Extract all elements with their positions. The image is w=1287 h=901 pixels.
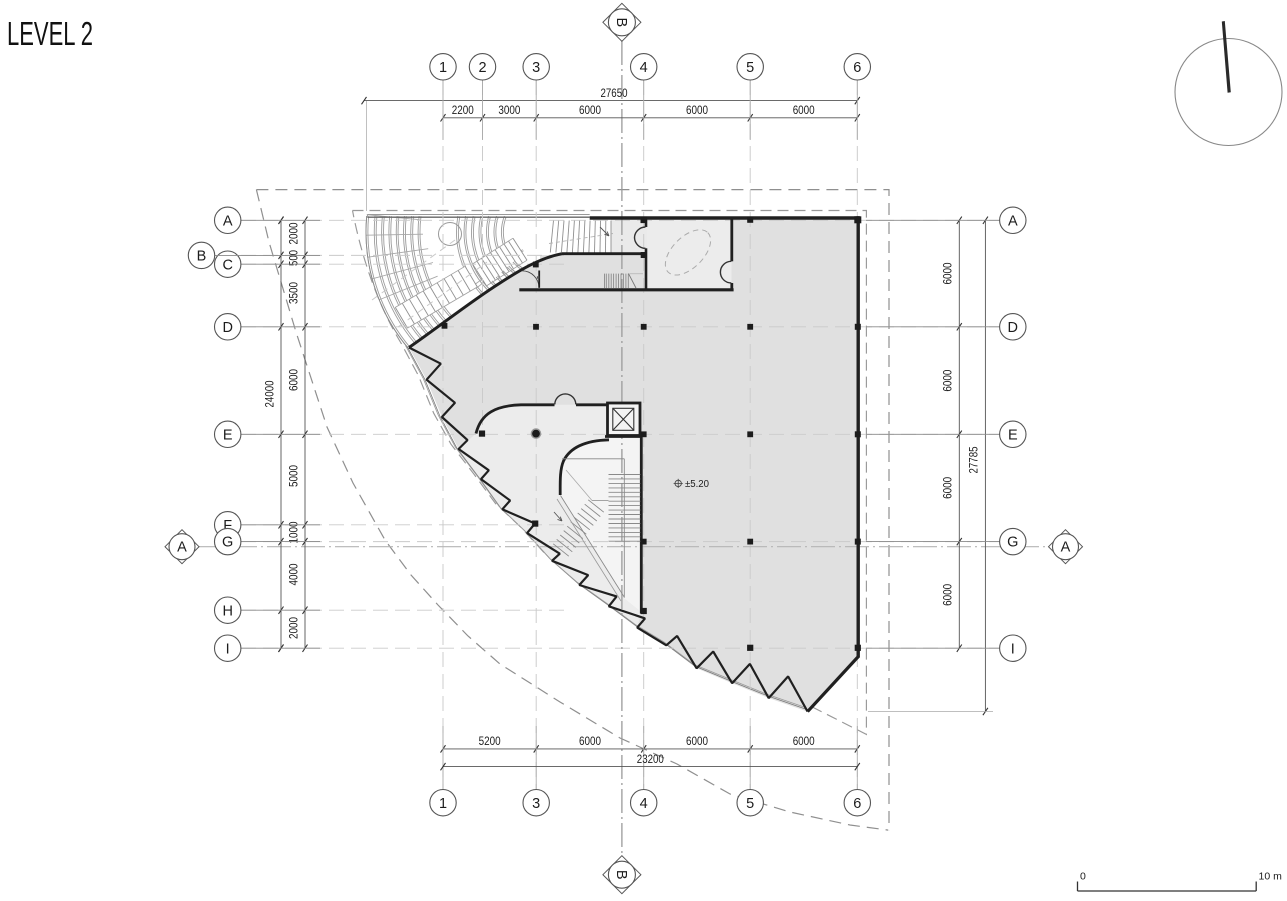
svg-text:3000: 3000 bbox=[498, 103, 520, 117]
svg-text:23200: 23200 bbox=[637, 752, 664, 766]
svg-text:5: 5 bbox=[746, 796, 754, 812]
svg-text:D: D bbox=[222, 320, 232, 336]
svg-text:27650: 27650 bbox=[601, 86, 628, 100]
svg-text:2000: 2000 bbox=[287, 617, 301, 639]
svg-text:C: C bbox=[222, 257, 232, 273]
svg-text:±5.20: ±5.20 bbox=[685, 479, 709, 490]
svg-text:D: D bbox=[1008, 320, 1018, 336]
svg-text:5000: 5000 bbox=[287, 465, 301, 487]
svg-text:1: 1 bbox=[439, 796, 447, 812]
svg-text:3: 3 bbox=[532, 60, 540, 76]
svg-text:A: A bbox=[223, 213, 233, 229]
svg-text:6000: 6000 bbox=[579, 734, 601, 748]
svg-text:6000: 6000 bbox=[941, 370, 955, 392]
svg-text:H: H bbox=[222, 603, 232, 619]
svg-text:24000: 24000 bbox=[263, 380, 277, 407]
svg-text:LEVEL 2: LEVEL 2 bbox=[7, 15, 93, 52]
svg-text:4000: 4000 bbox=[287, 563, 301, 585]
svg-text:6000: 6000 bbox=[579, 103, 601, 117]
svg-text:B: B bbox=[197, 249, 207, 265]
svg-text:27785: 27785 bbox=[967, 446, 981, 473]
svg-text:A: A bbox=[1061, 539, 1071, 555]
svg-text:5200: 5200 bbox=[479, 734, 501, 748]
svg-text:6000: 6000 bbox=[793, 734, 815, 748]
svg-text:B: B bbox=[613, 17, 629, 27]
svg-text:G: G bbox=[222, 535, 233, 551]
svg-text:6000: 6000 bbox=[287, 369, 301, 391]
svg-text:6000: 6000 bbox=[686, 103, 708, 117]
svg-text:E: E bbox=[1008, 427, 1018, 443]
svg-text:A: A bbox=[1008, 213, 1018, 229]
svg-text:2000: 2000 bbox=[287, 222, 301, 244]
svg-text:2: 2 bbox=[478, 60, 486, 76]
svg-text:A: A bbox=[177, 539, 187, 555]
svg-text:2200: 2200 bbox=[452, 103, 474, 117]
svg-text:1: 1 bbox=[439, 60, 447, 76]
svg-text:6000: 6000 bbox=[686, 734, 708, 748]
svg-text:E: E bbox=[223, 427, 233, 443]
svg-text:6: 6 bbox=[853, 796, 861, 812]
svg-text:4: 4 bbox=[640, 796, 648, 812]
svg-text:0: 0 bbox=[1080, 871, 1086, 883]
svg-text:6: 6 bbox=[853, 60, 861, 76]
svg-text:500: 500 bbox=[287, 250, 301, 266]
svg-text:4: 4 bbox=[640, 60, 648, 76]
svg-text:10 m: 10 m bbox=[1259, 871, 1283, 883]
svg-text:B: B bbox=[613, 870, 629, 880]
svg-text:I: I bbox=[1011, 641, 1015, 657]
svg-text:6000: 6000 bbox=[941, 584, 955, 606]
svg-text:5: 5 bbox=[746, 60, 754, 76]
svg-text:6000: 6000 bbox=[941, 477, 955, 499]
svg-text:I: I bbox=[226, 641, 230, 657]
svg-text:6000: 6000 bbox=[793, 103, 815, 117]
svg-text:G: G bbox=[1007, 535, 1018, 551]
svg-text:3: 3 bbox=[532, 796, 540, 812]
svg-text:3500: 3500 bbox=[287, 282, 301, 304]
svg-text:6000: 6000 bbox=[941, 262, 955, 284]
